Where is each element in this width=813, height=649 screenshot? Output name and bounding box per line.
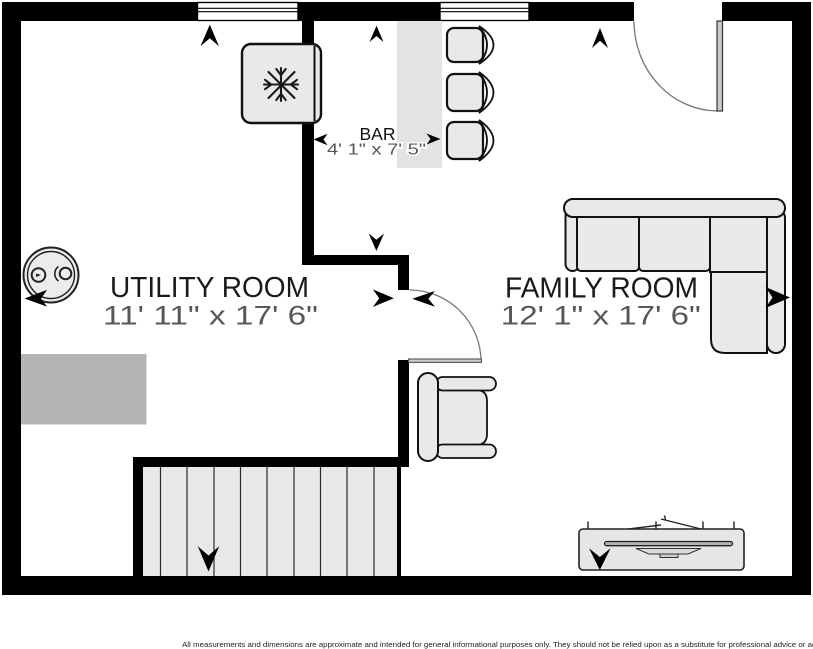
svg-text:12' 1" x 17' 6": 12' 1" x 17' 6" <box>501 301 701 331</box>
svg-text:All measurements and dimension: All measurements and dimensions are appr… <box>182 640 813 649</box>
svg-text:UTILITY ROOM: UTILITY ROOM <box>110 272 309 304</box>
svg-text:4' 1" x 7' 5": 4' 1" x 7' 5" <box>327 142 426 159</box>
svg-text:11' 11" x 17' 6": 11' 11" x 17' 6" <box>103 301 318 331</box>
